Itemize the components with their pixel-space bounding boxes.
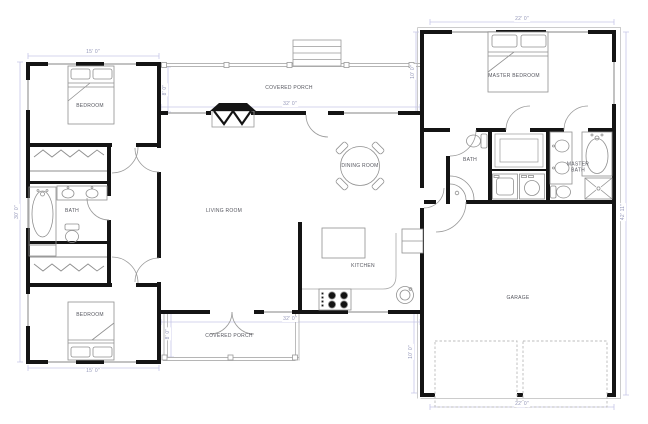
- door-arc: [112, 147, 138, 173]
- vanity-sinks-icon: [57, 186, 107, 200]
- garage-door: [435, 341, 607, 407]
- room-label-living-room: LIVING ROOM: [206, 209, 242, 215]
- door-arc: [210, 312, 232, 334]
- dimension-label-porch-bot-depth: 8' 0": [165, 328, 171, 341]
- toilet-icon: [551, 186, 571, 198]
- kitchen-island: [322, 228, 365, 258]
- door-arc: [436, 202, 466, 232]
- door-arc: [232, 312, 254, 334]
- room-label-porch-top: COVERED PORCH: [265, 86, 312, 92]
- bed-icon: [488, 32, 548, 92]
- dimension-label-left-height: 30' 0": [14, 204, 20, 220]
- bed-icon: [68, 66, 114, 124]
- bathtub-icon: [29, 187, 56, 256]
- door-arc: [135, 258, 159, 282]
- door-arc: [112, 257, 138, 283]
- dimension-label-mid-width-bottom: 32' 0": [282, 316, 298, 322]
- door-arc: [135, 148, 159, 172]
- room-label-porch-bottom: COVERED PORCH: [205, 334, 252, 340]
- master-vanity-icon: [550, 132, 572, 184]
- walk-in-closet: [495, 134, 543, 167]
- master-shower-icon: [585, 178, 612, 199]
- dimension-label-master-width: 22' 0": [514, 16, 530, 22]
- room-label-kitchen: KITCHEN: [351, 264, 375, 270]
- room-label-bath-right: BATH: [463, 158, 477, 164]
- dimension-label-mid-width-top: 32' 0": [282, 101, 298, 107]
- floor-plan-drawing: [0, 0, 648, 424]
- dimension-label-garage-width: 22' 0": [514, 401, 530, 407]
- stove-icon: [319, 289, 351, 310]
- room-label-bath-left: BATH: [65, 209, 79, 215]
- dimension-label-porch-top-depth: 8' 0": [162, 84, 168, 97]
- room-label-bedroom-bottom: BEDROOM: [76, 313, 104, 319]
- corner-shower-icon: [450, 176, 474, 200]
- door-arc: [87, 198, 109, 220]
- room-label-bedroom-top: BEDROOM: [76, 104, 104, 110]
- door-arc: [306, 115, 328, 137]
- room-label-dining-room: DINING ROOM: [341, 164, 378, 170]
- room-label-master-bedroom: MASTER BEDROOM: [488, 74, 540, 80]
- door-arc: [506, 106, 530, 130]
- entry-door-icon: [210, 103, 256, 127]
- door-arc: [424, 188, 444, 208]
- stairs-icon: [293, 40, 341, 66]
- toilet-icon: [467, 134, 488, 148]
- room-label-master-bath: MASTER BATH: [565, 162, 591, 174]
- door-arc: [450, 130, 476, 156]
- dimension-label-right-height: 42' 11": [620, 203, 626, 221]
- dryer-icon: [520, 174, 545, 199]
- washer-icon: [493, 174, 518, 199]
- room-label-garage: GARAGE: [507, 296, 530, 302]
- dimension-label-porch-top-right: 10' 0": [410, 64, 416, 80]
- dimension-label-left-width-bottom: 15' 0": [85, 368, 101, 374]
- floor-plan-canvas: BEDROOM BATH BEDROOM LIVING ROOM COVERED…: [0, 0, 648, 424]
- door-arc: [564, 106, 588, 130]
- refrigerator-icon: [402, 229, 423, 253]
- dimension-label-garage-side: 10' 0": [408, 344, 414, 360]
- dimension-label-left-width-top: 15' 0": [85, 49, 101, 55]
- toilet-icon: [65, 224, 79, 243]
- bed-icon: [68, 302, 114, 360]
- kitchen-sink-icon: [397, 287, 414, 304]
